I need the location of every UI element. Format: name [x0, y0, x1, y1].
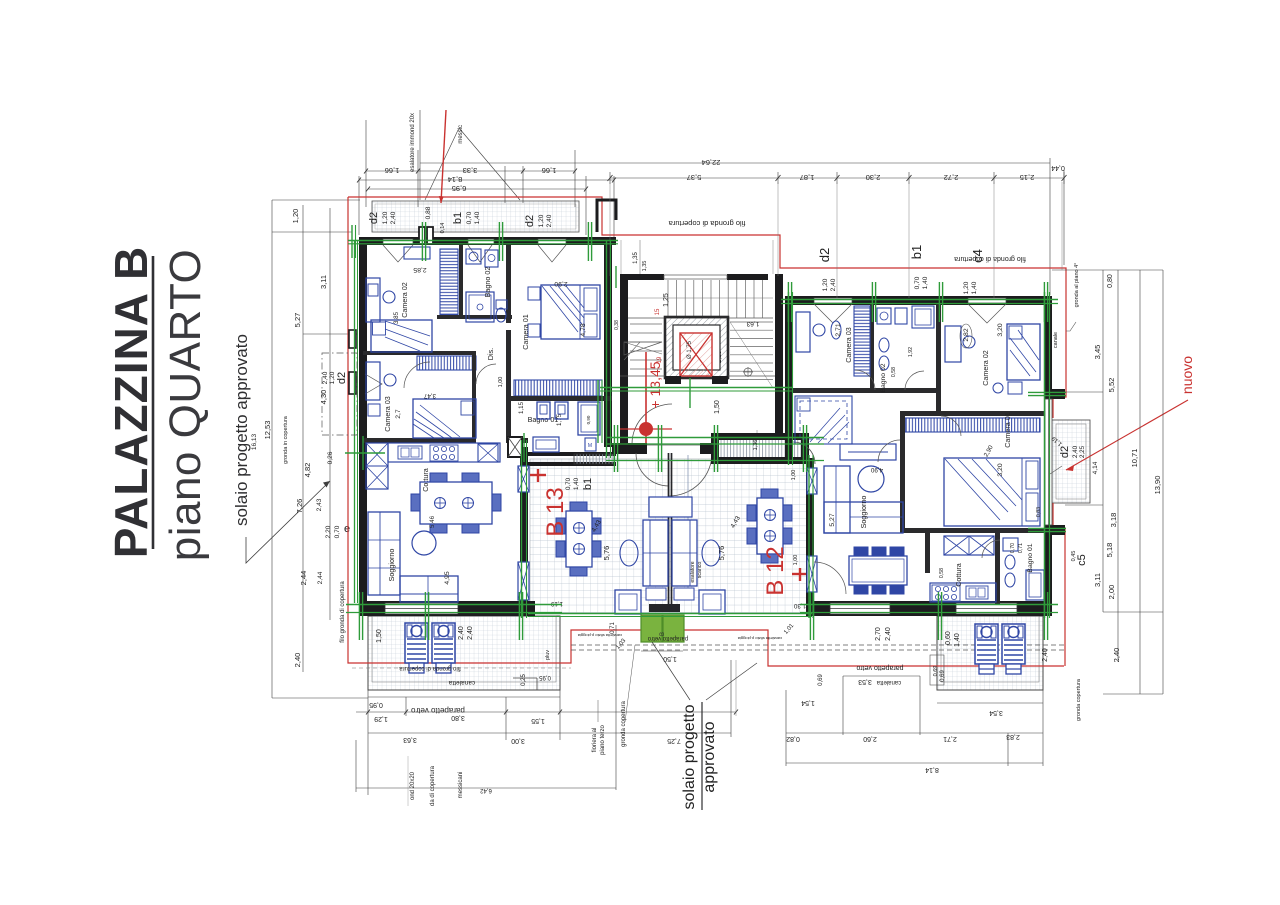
- svg-text:da di copertura: da di copertura: [430, 765, 436, 806]
- svg-text:0,26: 0,26: [327, 451, 334, 464]
- svg-text:2,40: 2,40: [885, 627, 892, 641]
- svg-text:canaletta sfiato p.pioggia: canaletta sfiato p.pioggia: [577, 633, 622, 638]
- svg-text:solaio progetto: solaio progetto: [681, 704, 698, 809]
- svg-text:approvato: approvato: [701, 721, 718, 792]
- svg-text:4,90: 4,90: [870, 466, 883, 473]
- svg-text:c5: c5: [1076, 554, 1088, 566]
- svg-text:Camera 02: Camera 02: [400, 282, 409, 318]
- svg-text:2,44: 2,44: [299, 571, 308, 586]
- svg-text:Cottura: Cottura: [954, 563, 963, 587]
- svg-text:3,11: 3,11: [319, 275, 328, 289]
- svg-text:1,40: 1,40: [954, 633, 961, 647]
- svg-text:1,50: 1,50: [714, 400, 721, 414]
- svg-text:1,30: 1,30: [793, 602, 806, 609]
- svg-text:1,87: 1,87: [800, 173, 815, 182]
- svg-text:Soggiorno: Soggiorno: [387, 549, 396, 582]
- svg-text:2,40: 2,40: [546, 214, 553, 227]
- svg-text:4,82: 4,82: [303, 463, 312, 478]
- svg-text:d2: d2: [524, 215, 536, 227]
- svg-text:Soggiorno: Soggiorno: [859, 496, 868, 529]
- svg-text:1,36: 1,36: [753, 440, 759, 451]
- svg-text:0,45: 0,45: [1071, 551, 1077, 562]
- svg-text:1,19: 1,19: [550, 600, 563, 607]
- svg-text:1,40: 1,40: [971, 281, 978, 294]
- svg-text:1,20: 1,20: [382, 211, 389, 224]
- svg-text:Bagno 02: Bagno 02: [483, 267, 492, 298]
- svg-text:0,82: 0,82: [786, 735, 800, 742]
- svg-text:1,40: 1,40: [474, 211, 481, 224]
- svg-text:0,69: 0,69: [818, 674, 824, 686]
- svg-text:3,00: 3,00: [511, 737, 525, 744]
- svg-text:1,50: 1,50: [376, 629, 383, 643]
- svg-text:2,90: 2,90: [554, 280, 567, 287]
- svg-text:3,20: 3,20: [997, 463, 1004, 476]
- svg-text:Camera 03: Camera 03: [844, 327, 853, 363]
- svg-text:0,70: 0,70: [1010, 543, 1016, 553]
- svg-text:piano terzo: piano terzo: [600, 724, 606, 754]
- svg-text:Camera 02: Camera 02: [981, 350, 990, 386]
- svg-text:gronda al piano 4°: gronda al piano 4°: [1074, 263, 1080, 308]
- svg-text:2,40: 2,40: [293, 653, 302, 668]
- svg-text:filo gronda di copertura: filo gronda di copertura: [340, 581, 346, 643]
- svg-text:2,70: 2,70: [875, 627, 882, 641]
- svg-text:2,44: 2,44: [317, 571, 324, 584]
- svg-text:b1: b1: [582, 478, 594, 490]
- svg-text:d2: d2: [1059, 446, 1071, 458]
- svg-text:2,30: 2,30: [866, 173, 881, 182]
- svg-text:parapetto vetro: parapetto vetro: [856, 664, 903, 671]
- svg-text:PALAZZINA B: PALAZZINA B: [105, 246, 157, 559]
- svg-text:d2: d2: [336, 372, 348, 384]
- svg-text:5,27: 5,27: [829, 513, 836, 526]
- svg-text:2,72: 2,72: [944, 173, 959, 182]
- svg-text:0,95: 0,95: [369, 701, 383, 708]
- svg-text:5,76: 5,76: [717, 546, 726, 561]
- svg-text:0,71: 0,71: [1018, 543, 1024, 553]
- svg-text:3,85: 3,85: [393, 311, 400, 324]
- svg-text:1,40: 1,40: [573, 477, 580, 490]
- svg-text:2,40: 2,40: [322, 371, 329, 384]
- svg-text:5,18: 5,18: [1105, 543, 1114, 558]
- svg-text:1,15: 1,15: [518, 401, 525, 414]
- svg-text:4,14: 4,14: [1092, 461, 1099, 474]
- svg-text:filo gronda di copertura: filo gronda di copertura: [954, 255, 1026, 262]
- svg-text:2,71: 2,71: [835, 323, 842, 336]
- svg-text:2,7: 2,7: [395, 409, 402, 419]
- svg-text:3,80: 3,80: [451, 714, 465, 721]
- svg-text:piano QUARTO: piano QUARTO: [161, 249, 210, 562]
- svg-text:3,45: 3,45: [1093, 345, 1102, 360]
- svg-text:2,43: 2,43: [316, 498, 323, 511]
- svg-text:0,58: 0,58: [939, 568, 945, 578]
- svg-text:Dis.: Dis.: [486, 348, 495, 360]
- svg-text:fioriera al: fioriera al: [592, 728, 598, 753]
- svg-text:M: M: [588, 443, 592, 449]
- svg-text:0,71: 0,71: [610, 622, 616, 634]
- svg-text:22,64: 22,64: [702, 158, 721, 167]
- svg-text:13,90: 13,90: [1153, 476, 1162, 495]
- svg-text:Camera 01: Camera 01: [521, 314, 530, 350]
- svg-text:1,20: 1,20: [822, 278, 829, 291]
- svg-text:4,95: 4,95: [444, 571, 451, 584]
- svg-text:solaio progetto approvato: solaio progetto approvato: [232, 334, 251, 526]
- svg-text:4,78: 4,78: [580, 323, 587, 336]
- svg-text:2,25: 2,25: [1079, 445, 1086, 458]
- svg-text:b1: b1: [909, 245, 924, 259]
- svg-text:2,82: 2,82: [963, 328, 970, 341]
- svg-text:gronda copertura: gronda copertura: [1076, 678, 1082, 721]
- svg-text:1,29: 1,29: [374, 715, 388, 722]
- svg-text:3,11: 3,11: [1093, 573, 1102, 587]
- svg-text:Bagno 01: Bagno 01: [1027, 543, 1034, 572]
- svg-text:nuovo: nuovo: [1179, 356, 1195, 394]
- svg-text:2,40: 2,40: [1072, 445, 1079, 458]
- svg-text:Ø 1,75: Ø 1,75: [687, 340, 693, 359]
- svg-text:19: 19: [657, 356, 663, 363]
- svg-text:canaletta: canaletta: [448, 679, 475, 686]
- svg-text:0,38: 0,38: [614, 320, 620, 330]
- svg-text:7,25: 7,25: [667, 737, 681, 744]
- svg-text:2,40: 2,40: [458, 626, 465, 640]
- svg-text:1,20: 1,20: [963, 281, 970, 294]
- svg-text:0,95: 0,95: [539, 674, 551, 680]
- svg-text:messicani: messicani: [458, 772, 464, 799]
- svg-text:1,35: 1,35: [642, 261, 648, 272]
- svg-text:1,54: 1,54: [801, 699, 815, 706]
- svg-text:5,46: 5,46: [429, 515, 436, 528]
- svg-text:0,70: 0,70: [466, 211, 473, 224]
- svg-text:2,40: 2,40: [1112, 648, 1121, 663]
- svg-text:5,27: 5,27: [293, 313, 302, 328]
- svg-text:+ 13,45: + 13,45: [647, 361, 663, 408]
- svg-text:parapetto vetro: parapetto vetro: [647, 635, 688, 641]
- svg-text:0,25: 0,25: [521, 674, 527, 686]
- svg-text:Camera 03: Camera 03: [383, 396, 392, 432]
- svg-text:messic: messic: [458, 125, 464, 144]
- svg-text:1,25: 1,25: [663, 293, 670, 307]
- svg-text:filo gronda di copertura: filo gronda di copertura: [668, 219, 746, 228]
- svg-text:0,58: 0,58: [891, 367, 897, 377]
- svg-text:2,71: 2,71: [943, 735, 957, 742]
- svg-text:2,40: 2,40: [467, 626, 474, 640]
- svg-text:2,15: 2,15: [1020, 173, 1035, 182]
- svg-text:5,76: 5,76: [602, 546, 611, 561]
- svg-text:1,92: 1,92: [908, 347, 914, 357]
- svg-text:gronda copertura: gronda copertura: [621, 700, 627, 746]
- svg-text:canaletta: canaletta: [876, 679, 901, 685]
- svg-text:0,44: 0,44: [1051, 164, 1065, 171]
- svg-text:15: 15: [655, 308, 661, 315]
- svg-text:1,50: 1,50: [663, 655, 677, 662]
- svg-text:6,95: 6,95: [452, 184, 467, 193]
- svg-text:3,63: 3,63: [403, 736, 417, 743]
- svg-text:1,20: 1,20: [538, 214, 545, 227]
- svg-text:5,37: 5,37: [687, 173, 702, 182]
- svg-text:0,60: 0,60: [945, 631, 952, 645]
- svg-text:0,69: 0,69: [940, 670, 946, 682]
- svg-text:parapetto vetro: parapetto vetro: [411, 706, 465, 715]
- svg-text:pluv: pluv: [545, 650, 551, 660]
- svg-text:esalatore: esalatore: [690, 561, 696, 582]
- svg-text:2,85: 2,85: [413, 266, 426, 273]
- svg-text:2,00: 2,00: [1107, 585, 1116, 600]
- svg-text:esalatore immond 20x: esalatore immond 20x: [410, 113, 416, 172]
- svg-text:4,30: 4,30: [319, 390, 328, 405]
- svg-text:2,40: 2,40: [390, 211, 397, 224]
- svg-text:1,40: 1,40: [922, 276, 929, 289]
- svg-text:2,60: 2,60: [863, 735, 877, 742]
- svg-text:1,66: 1,66: [542, 166, 557, 175]
- svg-text:d2: d2: [817, 248, 832, 262]
- svg-text:1,66: 1,66: [385, 166, 400, 175]
- svg-text:3,20: 3,20: [997, 323, 1004, 336]
- svg-text:7,26: 7,26: [295, 499, 304, 514]
- svg-text:0,70: 0,70: [914, 276, 921, 289]
- svg-text:1,55: 1,55: [531, 717, 545, 724]
- svg-text:Camera 01: Camera 01: [1003, 412, 1012, 448]
- svg-text:canaletta sfiato p.pioggia: canaletta sfiato p.pioggia: [737, 636, 782, 641]
- svg-text:gronda in copertura: gronda in copertura: [283, 415, 289, 464]
- svg-text:1,00: 1,00: [498, 377, 504, 388]
- svg-text:8,14: 8,14: [448, 175, 463, 184]
- svg-text:Bagno 02: Bagno 02: [880, 363, 887, 392]
- svg-text:0,83: 0,83: [1036, 507, 1042, 517]
- svg-text:8,14: 8,14: [925, 766, 939, 773]
- svg-text:1,00: 1,00: [791, 470, 797, 481]
- svg-text:0,88: 0,88: [425, 206, 432, 219]
- svg-text:d2: d2: [368, 212, 380, 224]
- svg-text:2,40: 2,40: [830, 278, 837, 291]
- svg-text:0,80: 0,80: [1107, 274, 1114, 288]
- svg-text:Cottura: Cottura: [421, 468, 430, 492]
- svg-text:2,20: 2,20: [325, 525, 332, 538]
- svg-text:0,70: 0,70: [334, 525, 341, 538]
- svg-text:3,33: 3,33: [463, 166, 478, 175]
- svg-text:0,69: 0,69: [933, 666, 939, 677]
- svg-text:3,47: 3,47: [423, 392, 436, 399]
- svg-text:scarico: scarico: [697, 562, 703, 579]
- svg-text:3,54: 3,54: [989, 709, 1003, 716]
- svg-text:1,75: 1,75: [556, 413, 563, 426]
- svg-text:ond 20x20: ond 20x20: [410, 771, 416, 800]
- svg-text:b1: b1: [452, 212, 464, 224]
- svg-text:1,63: 1,63: [746, 320, 759, 327]
- svg-text:0,90: 0,90: [586, 415, 591, 424]
- svg-text:canale: canale: [1053, 332, 1059, 348]
- svg-text:e: e: [344, 523, 350, 535]
- svg-text:B 12: B 12: [762, 546, 789, 595]
- svg-text:3,53: 3,53: [858, 678, 872, 685]
- svg-text:16,13: 16,13: [251, 433, 258, 450]
- svg-text:1,20: 1,20: [329, 371, 336, 384]
- svg-text:1,00: 1,00: [793, 555, 799, 566]
- svg-text:1,20: 1,20: [291, 209, 300, 224]
- svg-text:1,35: 1,35: [633, 252, 639, 264]
- svg-text:5,52: 5,52: [1107, 378, 1116, 393]
- svg-text:B 13: B 13: [542, 487, 569, 536]
- svg-text:12,53: 12,53: [263, 421, 272, 440]
- svg-text:3,18: 3,18: [1109, 513, 1118, 528]
- svg-text:0,14: 0,14: [440, 223, 446, 234]
- svg-text:10,71: 10,71: [1130, 449, 1139, 468]
